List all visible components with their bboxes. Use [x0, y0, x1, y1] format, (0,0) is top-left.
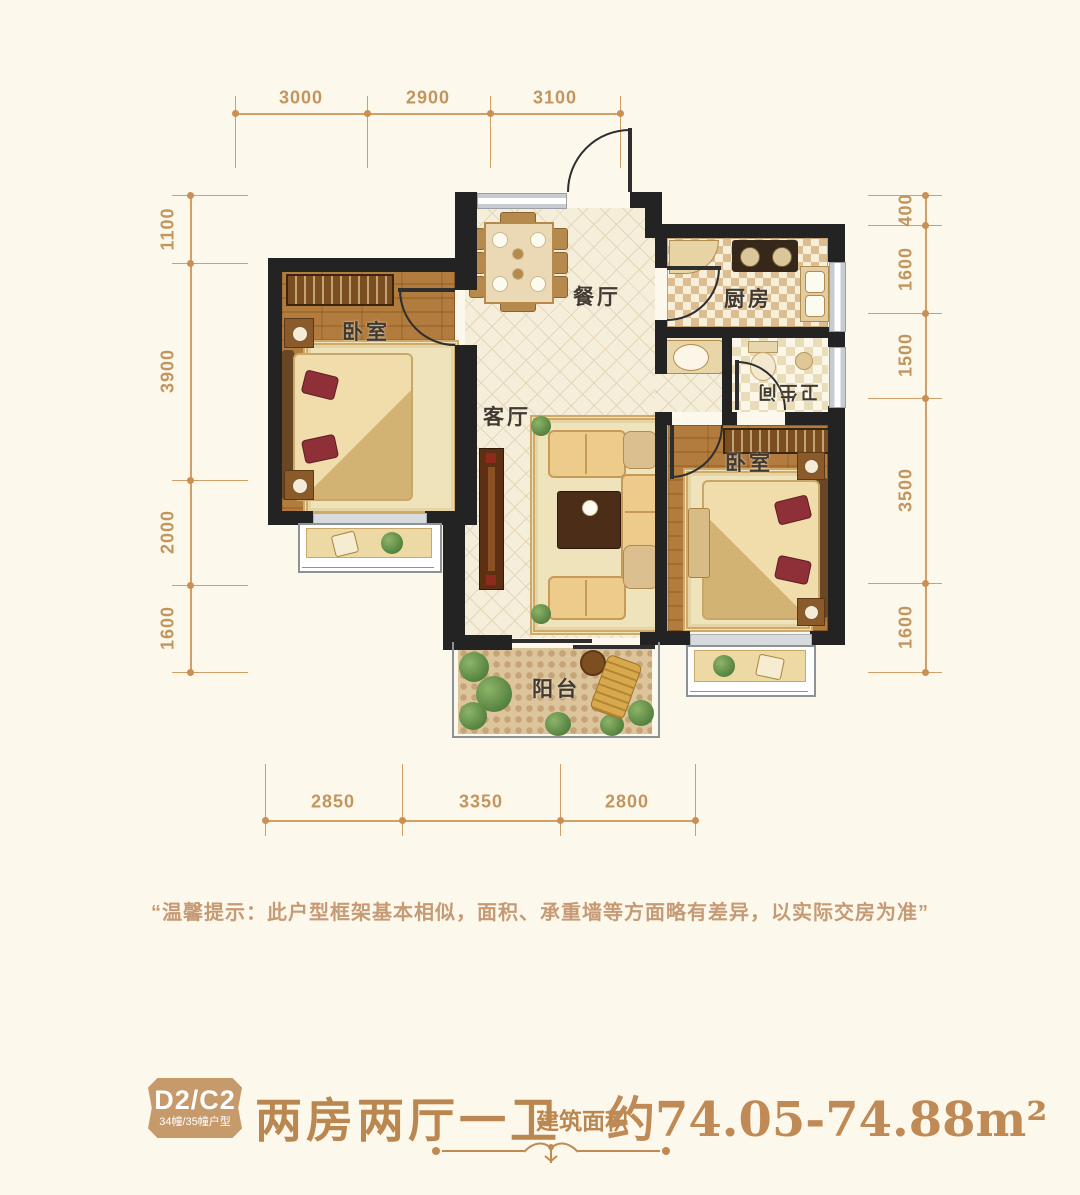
flourish-curl: [550, 1143, 578, 1152]
flourish-dot: [432, 1147, 440, 1155]
flourish-curl: [524, 1143, 552, 1152]
flourish-dot: [662, 1147, 670, 1155]
floorplan-page: 3000 2900 3100 1100 3900 2000 1600: [0, 0, 1080, 1195]
footer-flourish: [0, 0, 1080, 1195]
flourish-drop: [545, 1150, 557, 1163]
